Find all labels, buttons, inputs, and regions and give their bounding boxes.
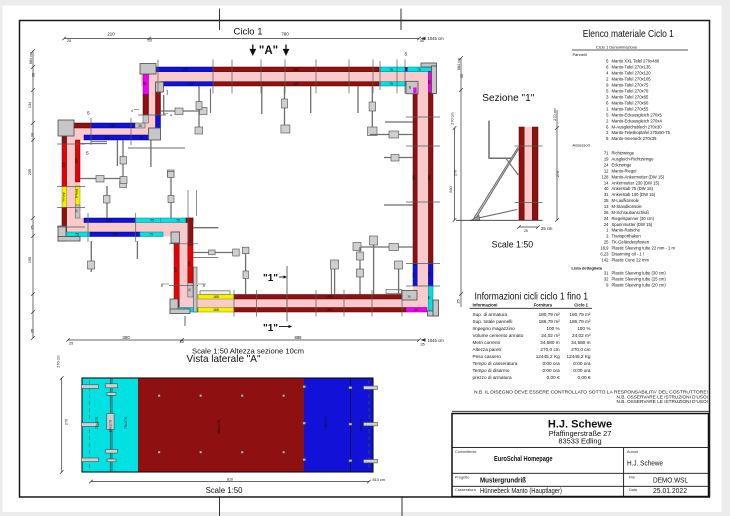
svg-text:Manto-Tafel 270x105: Manto-Tafel 270x105 [612,77,652,82]
svg-text:134: 134 [28,102,32,108]
svg-text:File: File [629,475,635,479]
svg-text:N.B. OSSERVARE LE ISTRUZIONI D: N.B. OSSERVARE LE ISTRUZIONI D'USO! [617,399,709,404]
svg-text:135: 135 [104,136,110,140]
svg-text:Fornitura: Fornitura [534,303,553,308]
svg-text:18,9: 18,9 [600,246,609,251]
svg-text:888: 888 [295,335,303,340]
svg-text:35: 35 [75,209,79,213]
svg-text:4: 4 [131,109,133,113]
svg-text:"1": "1" [263,323,278,334]
svg-text:5: 5 [87,111,90,117]
svg-text:270,0 cm: 270,0 cm [571,347,590,352]
svg-text:14: 14 [604,180,609,185]
svg-text:255: 255 [28,169,32,175]
svg-text:"1": "1" [263,273,278,284]
svg-text:M-Standkonsole: M-Standkonsole [612,204,643,209]
svg-text:55: 55 [140,136,144,140]
svg-text:Sup. di armatura: Sup. di armatura [473,312,508,317]
svg-text:1045 cm: 1045 cm [428,36,445,41]
svg-text:31: 31 [604,271,609,276]
svg-text:270 cm: 270 cm [553,108,557,120]
svg-text:Manto XXL Tafel 270x480: Manto XXL Tafel 270x480 [612,59,660,64]
svg-text:35: 35 [421,343,425,347]
svg-text:100 %: 100 % [577,326,590,331]
svg-text:5: 5 [161,284,163,288]
svg-text:270,0 cm: 270,0 cm [540,347,559,352]
svg-text:35: 35 [407,295,411,299]
svg-text:Sezione "1": Sezione "1" [482,92,534,104]
svg-text:32: 32 [604,276,609,281]
svg-text:83533 Edling: 83533 Edling [558,437,601,446]
svg-text:35: 35 [408,86,412,90]
svg-text:Informazioni cicli ciclo 1 fi: Informazioni cicli ciclo 1 fino 1 [475,292,589,303]
svg-text:Plastic Sleeving tube (25 cm): Plastic Sleeving tube (25 cm) [612,276,667,281]
svg-text:35: 35 [187,288,191,292]
svg-text:30: 30 [32,73,36,77]
svg-text:810: 810 [227,477,233,481]
svg-text:Mustergrundriß: Mustergrundriß [480,477,527,484]
svg-text:480: 480 [412,175,416,181]
svg-text:Manto-Tafel 270x70: Manto-Tafel 270x70 [612,89,649,94]
svg-text:186,79 m²: 186,79 m² [539,319,561,324]
svg-text:480x270: 480x270 [217,420,221,435]
svg-text:75: 75 [389,68,393,72]
svg-text:Scale 1:50: Scale 1:50 [206,486,244,495]
svg-text:"A": "A" [259,45,278,57]
svg-text:25: 25 [31,225,35,229]
svg-text:13: 13 [604,204,609,209]
svg-text:135: 135 [106,219,112,223]
svg-text:270 cm: 270 cm [451,112,455,124]
svg-text:Manto-Tafel 270x135: Manto-Tafel 270x135 [612,65,652,70]
svg-text:25: 25 [604,198,609,203]
svg-text:Spannmutter (DW 15): Spannmutter (DW 15) [612,222,653,227]
svg-text:24: 24 [604,216,609,221]
svg-text:480: 480 [293,68,299,72]
svg-text:M-Laufkonsole: M-Laufkonsole [612,198,640,203]
svg-text:Ciclo 1: Ciclo 1 [574,303,588,308]
svg-text:Lista dettagliata: Lista dettagliata [572,265,603,270]
svg-text:1045 cm: 1045 cm [428,338,445,343]
svg-text:0:00 ora: 0:00 ora [542,361,560,366]
svg-text:135: 135 [182,68,188,72]
svg-text:Plastic Sleeving tube 22 mm -: Plastic Sleeving tube 22 mm - 1 m [612,246,676,251]
svg-text:300: 300 [122,335,130,340]
svg-text:120: 120 [61,162,65,168]
svg-text:Manto-Tafel 270x120: Manto-Tafel 270x120 [612,71,652,76]
svg-text:6,23: 6,23 [600,251,609,256]
svg-text:Assessori: Assessori [573,143,590,148]
svg-text:DEMO.WSL: DEMO.WSL [653,477,688,484]
svg-text:Eckzwinge: Eckzwinge [612,163,633,168]
svg-text:35: 35 [420,39,424,43]
svg-text:75x270: 75x270 [95,417,99,429]
svg-text:TK-Geländerpfosten: TK-Geländerpfosten [612,240,650,245]
svg-text:Riegelspanner (30 cm): Riegelspanner (30 cm) [612,216,655,221]
svg-text:25: 25 [457,299,461,303]
svg-text:Altezza pareti: Altezza pareti [473,347,501,352]
svg-text:25: 25 [31,329,35,333]
svg-text:Vista laterale "A": Vista laterale "A" [187,353,261,365]
svg-text:128: 128 [602,174,610,179]
svg-text:Transporthaken: Transporthaken [612,234,642,239]
svg-text:195: 195 [28,257,32,263]
svg-text:270 cm: 270 cm [57,355,61,367]
svg-text:120: 120 [174,267,178,273]
svg-text:Manto-Tafel 270x65: Manto-Tafel 270x65 [612,94,649,99]
svg-text:Manto-Ankermutter (DW 15): Manto-Ankermutter (DW 15) [612,174,665,179]
svg-text:5: 5 [203,284,205,288]
svg-text:12445,2 Kg: 12445,2 Kg [536,354,560,359]
svg-text:75: 75 [150,219,154,223]
svg-text:Ankerstab 75 (DW 15): Ankerstab 75 (DW 15) [612,186,654,191]
svg-text:75: 75 [149,233,153,237]
svg-text:142: 142 [602,257,610,262]
svg-text:25 cm: 25 cm [541,226,553,231]
svg-text:Committente: Committente [455,450,477,454]
svg-text:Manto-Tafel 270x60: Manto-Tafel 270x60 [612,100,649,105]
svg-text:25: 25 [69,342,73,346]
svg-text:120: 120 [187,261,191,267]
svg-text:Ciclo 1 Denominazione: Ciclo 1 Denominazione [596,45,638,50]
svg-text:Plastic Sleeving tube (20 cm): Plastic Sleeving tube (20 cm) [612,282,667,287]
svg-text:75x270: 75x270 [124,417,128,429]
svg-text:270: 270 [454,170,458,176]
svg-text:65: 65 [414,308,418,312]
svg-text:Manto-Teleskoptafel 270x50-75: Manto-Teleskoptafel 270x50-75 [612,130,671,135]
svg-text:40: 40 [604,186,609,191]
svg-text:H.J. Schewe: H.J. Schewe [627,460,663,467]
svg-text:Progetto: Progetto [455,475,469,479]
svg-text:75: 75 [389,82,393,86]
svg-text:M-Schraubanschluß: M-Schraubanschluß [612,210,650,215]
svg-text:0:00 ora: 0:00 ora [542,368,560,373]
svg-text:34,580 m: 34,580 m [571,340,591,345]
svg-text:Impegno magazzino: Impegno magazzino [473,326,516,331]
svg-text:24,02 m³: 24,02 m³ [541,333,560,338]
svg-text:684 cm: 684 cm [457,58,461,70]
svg-text:75: 75 [428,296,432,300]
svg-text:12445,2 Kg: 12445,2 Kg [567,354,591,359]
svg-text:Casseratura: Casseratura [455,488,477,492]
svg-text:30: 30 [460,74,464,78]
svg-text:Manto-Eckausgleich 270x5: Manto-Eckausgleich 270x5 [612,112,663,117]
svg-text:25: 25 [604,240,609,245]
svg-text:210: 210 [107,32,115,37]
svg-text:Hünnebeck Manto (Hauptlager): Hünnebeck Manto (Hauptlager) [480,488,562,495]
svg-text:165: 165 [213,295,219,299]
svg-text:Ankerstab 100 (DW 15): Ankerstab 100 (DW 15) [612,192,656,197]
svg-text:135: 135 [412,272,416,278]
svg-text:Ciclo 1: Ciclo 1 [233,27,262,38]
svg-text:75: 75 [417,68,421,72]
svg-text:5: 5 [86,151,89,157]
svg-text:135: 135 [428,271,432,277]
svg-text:0:00 ora: 0:00 ora [573,361,591,366]
svg-text:Tempo di disarmo: Tempo di disarmo [473,368,510,373]
svg-text:Data: Data [629,488,638,492]
svg-text:135x270: 135x270 [324,416,328,431]
svg-text:Tempo di casseratura: Tempo di casseratura [473,361,518,366]
svg-text:180,79 m²: 180,79 m² [539,312,561,317]
svg-text:Manto-Eckausgleich 270x4: Manto-Eckausgleich 270x4 [612,118,663,123]
svg-text:630: 630 [449,186,453,192]
svg-text:M-Ausgleichsblech 270x30: M-Ausgleichsblech 270x30 [612,124,663,129]
svg-text:480: 480 [428,175,432,181]
svg-text:19: 19 [604,157,609,162]
svg-text:186,79 m²: 186,79 m² [569,319,591,324]
svg-text:120: 120 [75,158,79,164]
svg-text:12: 12 [604,168,609,173]
svg-text:26: 26 [604,210,609,215]
svg-text:31: 31 [604,192,609,197]
svg-text:Pannelli: Pannelli [573,52,587,57]
svg-text:Scale 1:50: Scale 1:50 [492,240,534,250]
svg-text:25.01.2022: 25.01.2022 [653,488,687,495]
svg-text:Manto-Tafel 270x55: Manto-Tafel 270x55 [612,106,649,111]
svg-text:Disarming oil - 1 l: Disarming oil - 1 l [612,251,644,256]
svg-text:180,79 m²: 180,79 m² [569,312,591,317]
svg-text:65: 65 [143,82,147,86]
svg-text:24,02 m³: 24,02 m³ [572,333,591,338]
svg-text:24: 24 [604,222,609,227]
svg-text:135: 135 [187,82,193,86]
svg-text:24: 24 [604,163,609,168]
svg-text:Volume cemento armato: Volume cemento armato [473,333,524,338]
svg-text:Plastic Cone 22 mm: Plastic Cone 22 mm [612,257,650,262]
svg-text:5: 5 [405,52,408,58]
svg-text:Manto-Ratsche: Manto-Ratsche [612,228,641,233]
svg-text:480: 480 [327,295,333,299]
svg-text:100 %: 100 % [546,326,559,331]
svg-text:75x270: 75x270 [360,419,364,431]
svg-text:Ankermutter 230 (DW 15): Ankermutter 230 (DW 15) [612,180,660,185]
svg-text:135: 135 [112,233,118,237]
svg-text:75: 75 [75,233,79,237]
svg-text:270: 270 [556,171,560,177]
svg-text:135: 135 [109,124,115,128]
svg-text:Informazioni: Informazioni [473,303,498,308]
svg-text:20: 20 [31,133,35,137]
svg-text:25: 25 [67,39,71,43]
svg-text:165: 165 [213,308,219,312]
svg-text:684 cm: 684 cm [29,52,33,64]
svg-text:0,00 €: 0,00 € [547,375,560,380]
svg-text:Richtzwinge: Richtzwinge [612,151,635,156]
svg-text:25: 25 [524,229,528,233]
svg-text:780: 780 [281,32,289,37]
svg-text:20: 20 [148,39,152,43]
svg-text:Metri correnti: Metri correnti [473,340,500,345]
svg-text:60x270: 60x270 [109,420,113,432]
svg-text:810 cm: 810 cm [373,478,385,482]
svg-text:35: 35 [138,124,142,128]
svg-text:Sup. totale pannelli: Sup. totale pannelli [473,319,513,324]
svg-text:M-Ausgl: M-Ausgl [75,188,79,198]
svg-text:prezzo di armatura: prezzo di armatura [473,375,512,380]
svg-text:71: 71 [604,151,609,156]
svg-text:270: 270 [65,419,69,425]
svg-text:25: 25 [180,340,184,344]
svg-text:Ausgleich-Richtzwinge: Ausgleich-Richtzwinge [612,157,655,162]
svg-text:480: 480 [293,82,299,86]
svg-text:Manto-Riegel: Manto-Riegel [612,168,637,173]
svg-text:EuroSchal Homepage: EuroSchal Homepage [494,456,553,463]
svg-text:Elenco materiale Ciclo 1: Elenco materiale Ciclo 1 [583,28,674,40]
svg-text:Manto-Inneneck 270x35: Manto-Inneneck 270x35 [612,136,658,141]
svg-text:Plastic Sleeving tube (30 cm): Plastic Sleeving tube (30 cm) [612,271,667,276]
svg-text:Peso cassero: Peso cassero [473,354,502,359]
svg-text:4: 4 [170,113,172,117]
svg-text:0,00 €: 0,00 € [577,375,590,380]
svg-text:34,580 m: 34,580 m [540,340,560,345]
svg-text:0:00 ora: 0:00 ora [573,368,591,373]
svg-text:75: 75 [176,219,180,223]
svg-text:Autore: Autore [627,450,638,454]
svg-text:Manto-Tafel 270x75: Manto-Tafel 270x75 [612,83,649,88]
svg-text:M-Ausgl: M-Ausgl [61,192,65,202]
svg-text:480: 480 [327,308,333,312]
